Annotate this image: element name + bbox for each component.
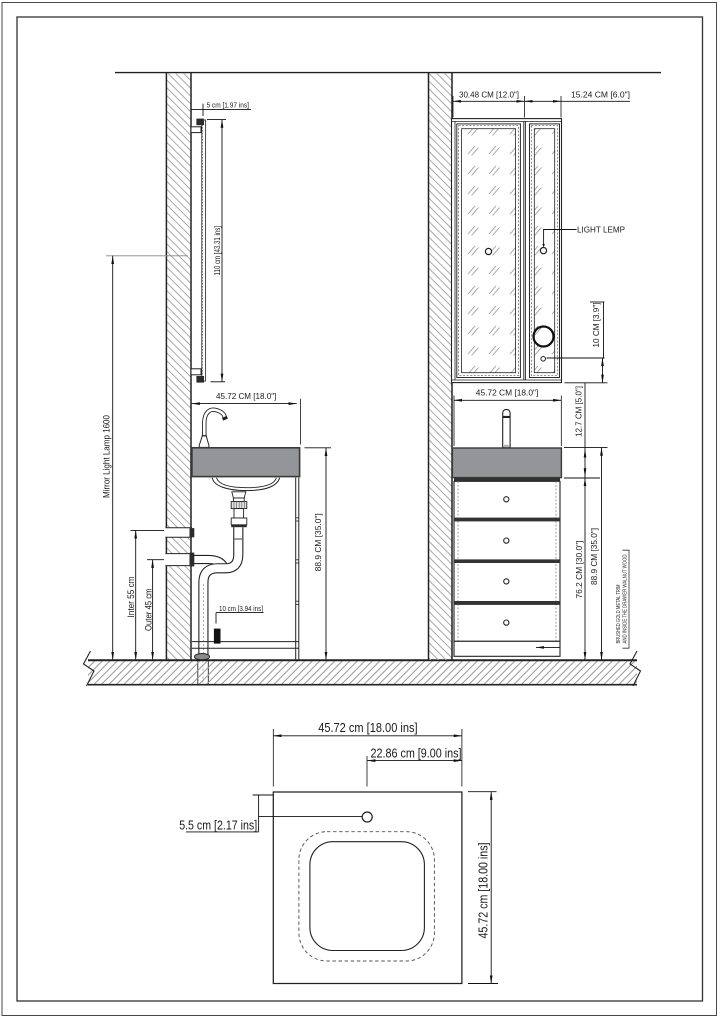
svg-text:45.72 CM [18.0"]: 45.72 CM [18.0"] [216,391,276,401]
svg-text:LIGHT LEMP: LIGHT LEMP [577,224,625,234]
svg-text:15.24 CM [6.0"]: 15.24 CM [6.0"] [571,89,630,99]
svg-text:45.72 CM [18.0"]: 45.72 CM [18.0"] [476,388,539,398]
svg-text:Outer 45 cm: Outer 45 cm [143,588,153,631]
svg-text:88.9 CM [35.0"]: 88.9 CM [35.0"] [589,528,599,585]
svg-text:5.5 cm [2.17 ins]: 5.5 cm [2.17 ins] [179,819,257,833]
svg-text:110 cm [43.31 ins]: 110 cm [43.31 ins] [213,226,222,276]
svg-text:45.72 cm [18.00 ins]: 45.72 cm [18.00 ins] [318,721,417,735]
svg-text:22.86 cm [9.00 ins]: 22.86 cm [9.00 ins] [371,747,462,761]
svg-text:5 cm [1.97 ins]: 5 cm [1.97 ins] [207,100,250,109]
svg-text:88.9 CM [35.0"]: 88.9 CM [35.0"] [313,513,323,571]
svg-text:10 CM [3.9"]: 10 CM [3.9"] [591,303,601,348]
svg-text:76.2 CM [30.0"]: 76.2 CM [30.0"] [574,541,584,599]
svg-text:Mirror Light Lamp 1600: Mirror Light Lamp 1600 [101,415,111,498]
svg-text:45.72 cm [18.00 ins]: 45.72 cm [18.00 ins] [477,843,491,939]
svg-text:30.48 CM [12.0"]: 30.48 CM [12.0"] [459,89,519,99]
svg-text:BRUSHED GOLD METAL TRIM: BRUSHED GOLD METAL TRIM [616,585,622,644]
svg-text:12.7 CM [5.0"]: 12.7 CM [5.0"] [574,386,584,437]
svg-text:Inter 55 cm: Inter 55 cm [126,576,136,617]
svg-text:10 cm [3.94 ins]: 10 cm [3.94 ins] [219,604,263,613]
svg-text:AND INSIDE THE DRAWER WALNUT W: AND INSIDE THE DRAWER WALNUT WOOD [623,554,629,643]
